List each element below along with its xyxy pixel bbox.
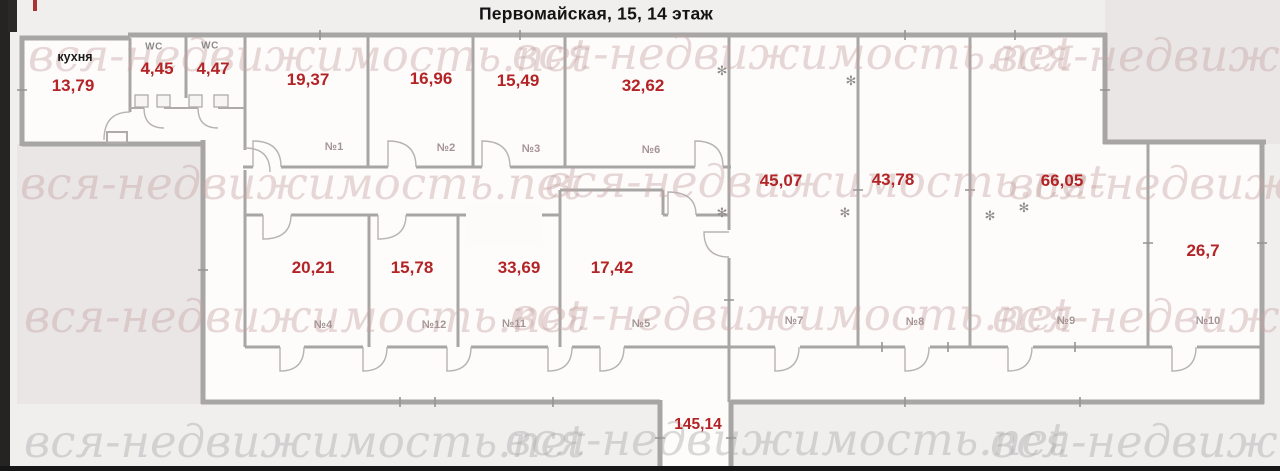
room-4-area-label: 20,21 bbox=[292, 258, 335, 278]
room-11-area-label: 33,69 bbox=[498, 258, 541, 278]
room-8-area-label: 43,78 bbox=[872, 170, 915, 190]
room-2-area-label: 16,96 bbox=[410, 69, 453, 89]
room-6-number-label: №6 bbox=[642, 144, 660, 156]
room-9-number-label: №9 bbox=[1057, 315, 1075, 327]
room-1-area-label: 19,37 bbox=[287, 70, 330, 90]
room-12-area-label: 15,78 bbox=[391, 258, 434, 278]
room-12-number-label: №12 bbox=[422, 319, 447, 331]
room-3-area-label: 15,49 bbox=[497, 71, 540, 91]
room-3-number-label: №3 bbox=[522, 143, 540, 155]
radiator-icon: ✻ bbox=[846, 74, 857, 89]
plan-title: Первомайская, 15, 14 этаж bbox=[479, 4, 713, 25]
radiator-icon: ✻ bbox=[717, 64, 728, 79]
wc1-area-label: 4,45 bbox=[140, 59, 173, 79]
room-7-area-label: 45,07 bbox=[760, 171, 803, 191]
kitchen-area-label: 13,79 bbox=[52, 76, 95, 96]
radiator-icon: ✻ bbox=[985, 209, 996, 224]
kitchen-name-label: кухня bbox=[57, 50, 92, 64]
radiator-icon: ✻ bbox=[840, 206, 851, 221]
room-9-area-label: 66,05 bbox=[1041, 171, 1084, 191]
floor-plan-drawing: ✻ ✻ ✻ ✻ ✻ ✻ bbox=[0, 0, 1280, 471]
corridor-area-label: 145,14 bbox=[674, 416, 721, 434]
wc2-name-label: WC bbox=[201, 41, 219, 52]
room-5-area-label: 17,42 bbox=[591, 258, 634, 278]
room-6-area-label: 32,62 bbox=[622, 76, 665, 96]
room-10-number-label: №10 bbox=[1196, 315, 1221, 327]
radiator-icon: ✻ bbox=[717, 206, 728, 221]
room-7-number-label: №7 bbox=[785, 315, 803, 327]
room-2-number-label: №2 bbox=[437, 142, 455, 154]
floor-plan-image: ✻ ✻ ✻ ✻ ✻ ✻ вся-недвижимость.net вся-нед… bbox=[0, 0, 1280, 471]
scan-white-patch bbox=[466, 203, 542, 246]
room-4-number-label: №4 bbox=[314, 319, 332, 331]
room-5-number-label: №5 bbox=[632, 318, 650, 330]
room-8-number-label: №8 bbox=[906, 316, 924, 328]
wc2-area-label: 4,47 bbox=[196, 59, 229, 79]
room-10-area-label: 26,7 bbox=[1186, 241, 1219, 261]
wc1-name-label: WC bbox=[145, 42, 163, 53]
radiator-icon: ✻ bbox=[1019, 201, 1030, 216]
room-11-number-label: №11 bbox=[502, 318, 526, 330]
room-1-number-label: №1 bbox=[325, 141, 343, 153]
